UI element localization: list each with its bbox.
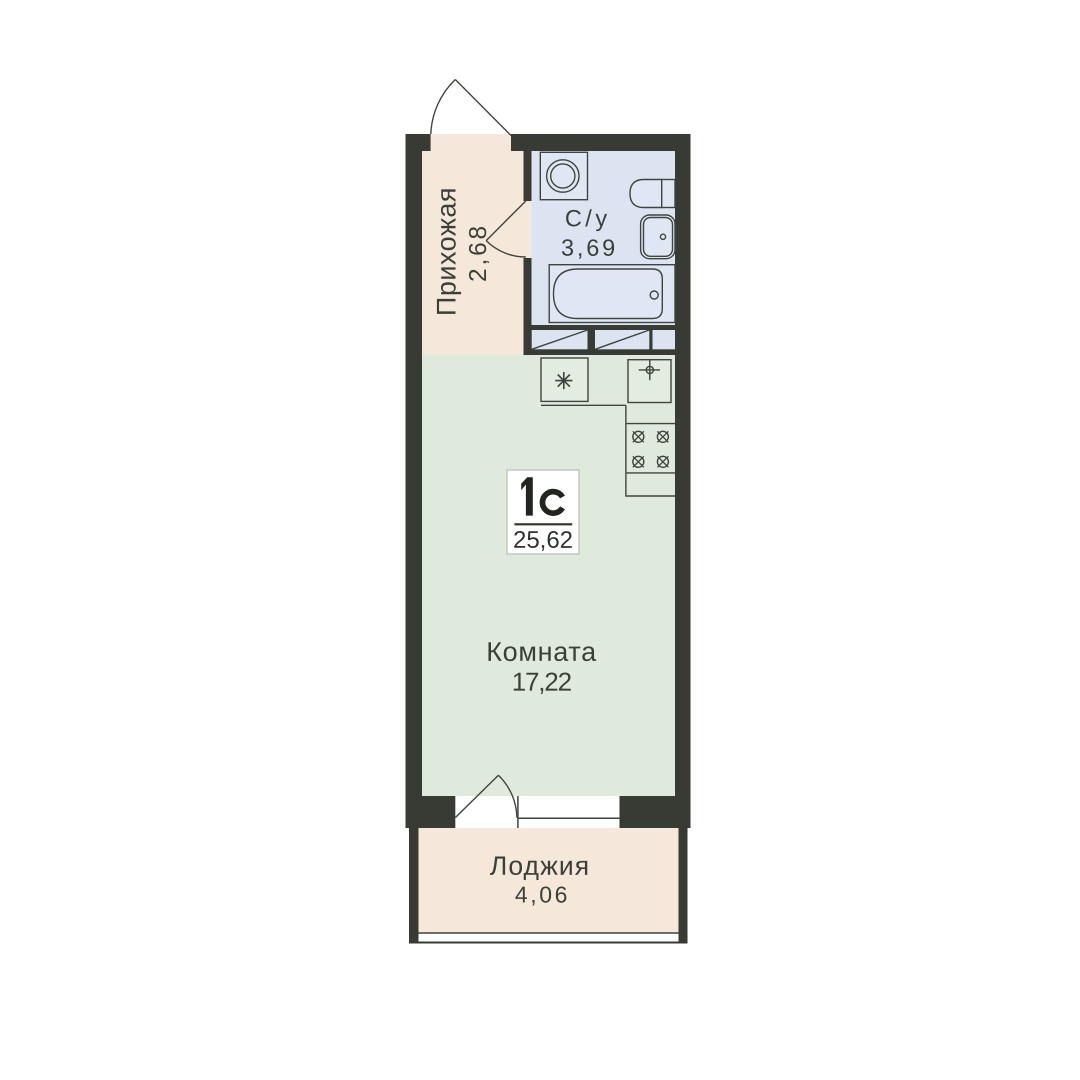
svg-text:25,62: 25,62 xyxy=(513,527,573,554)
svg-text:17,22: 17,22 xyxy=(512,667,572,697)
svg-text:Комната: Комната xyxy=(486,637,597,667)
svg-text:2,68: 2,68 xyxy=(465,223,492,282)
svg-text:3,69: 3,69 xyxy=(561,235,618,261)
svg-text:Прихожая: Прихожая xyxy=(432,187,462,316)
svg-text:4,06: 4,06 xyxy=(515,881,570,907)
svg-text:С/у: С/у xyxy=(565,205,611,231)
svg-text:Лоджия: Лоджия xyxy=(490,851,590,881)
